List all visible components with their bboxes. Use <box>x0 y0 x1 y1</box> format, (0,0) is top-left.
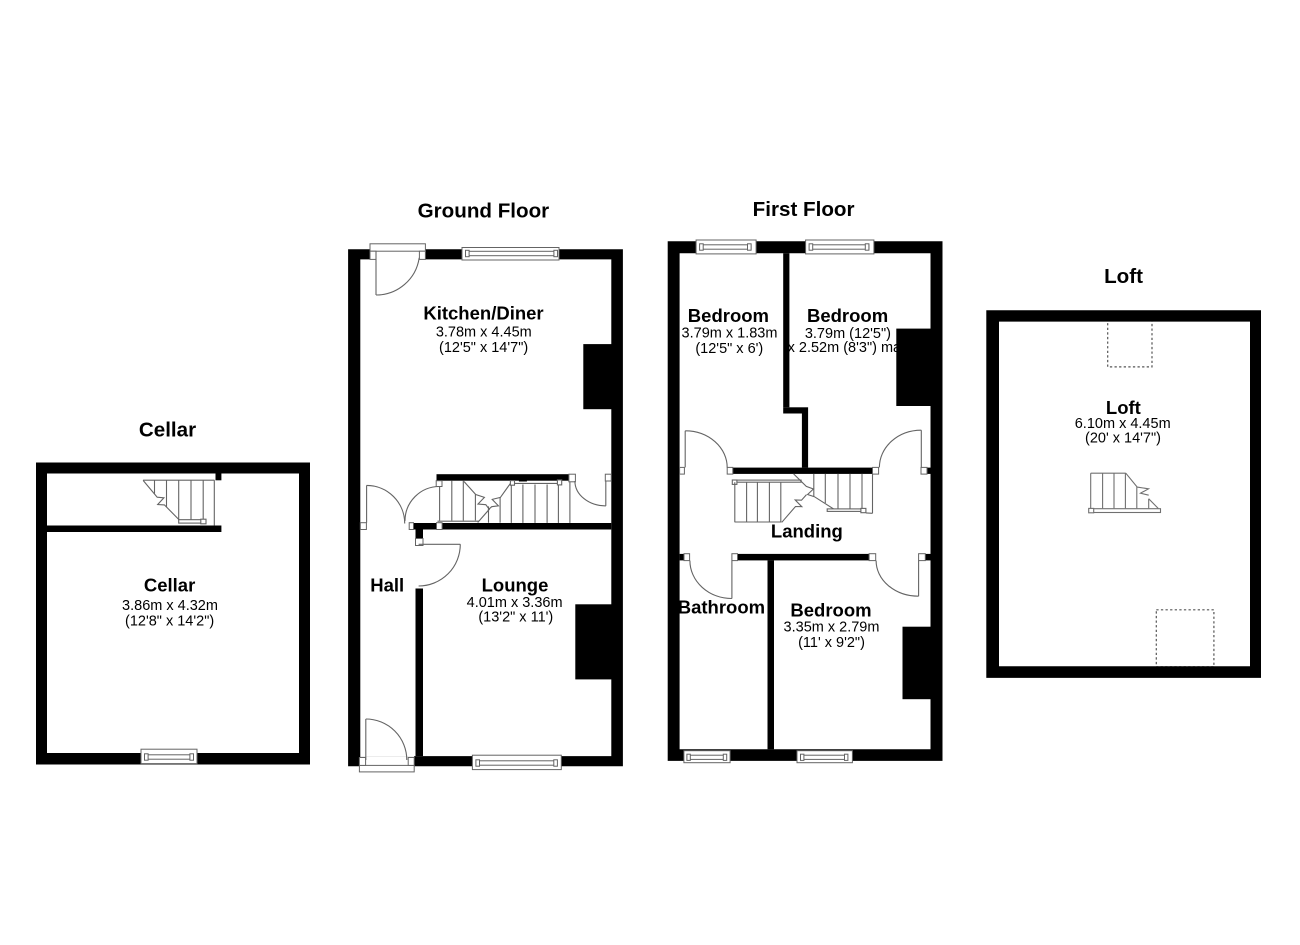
svg-text:Bedroom: Bedroom <box>790 600 871 621</box>
svg-text:3.35m x 2.79m: 3.35m x 2.79m <box>784 620 880 636</box>
svg-text:Ground Floor: Ground Floor <box>418 200 550 223</box>
svg-text:(12'8" x 14'2"): (12'8" x 14'2") <box>125 614 214 630</box>
svg-text:(13'2" x 11'): (13'2" x 11') <box>478 610 553 626</box>
svg-text:(12'5" x 6'): (12'5" x 6') <box>695 341 763 357</box>
svg-text:(11' x 9'2"): (11' x 9'2") <box>798 635 865 651</box>
svg-text:Kitchen/Diner: Kitchen/Diner <box>423 303 543 324</box>
svg-text:Cellar: Cellar <box>139 419 196 442</box>
svg-text:3.79m x 1.83m: 3.79m x 1.83m <box>682 326 778 342</box>
svg-text:x 2.52m (8'3") max: x 2.52m (8'3") max <box>788 340 909 356</box>
svg-text:Bathroom: Bathroom <box>678 597 765 618</box>
svg-text:First Floor: First Floor <box>753 198 855 221</box>
svg-text:(20' x 14'7"): (20' x 14'7") <box>1085 430 1161 446</box>
svg-text:Bedroom: Bedroom <box>807 305 888 326</box>
svg-text:3.78m x 4.45m: 3.78m x 4.45m <box>436 324 532 340</box>
svg-text:3.79m (12'5"): 3.79m (12'5") <box>805 326 891 342</box>
svg-text:Loft: Loft <box>1104 265 1143 288</box>
svg-text:Cellar: Cellar <box>144 575 195 596</box>
svg-text:Bedroom: Bedroom <box>688 305 769 326</box>
svg-text:3.86m x 4.32m: 3.86m x 4.32m <box>122 598 218 614</box>
svg-text:Hall: Hall <box>370 574 404 595</box>
svg-text:4.01m x 3.36m: 4.01m x 3.36m <box>467 595 563 611</box>
svg-text:Landing: Landing <box>771 521 843 542</box>
svg-text:Lounge: Lounge <box>482 575 549 596</box>
svg-text:(12'5" x 14'7"): (12'5" x 14'7") <box>439 340 528 356</box>
